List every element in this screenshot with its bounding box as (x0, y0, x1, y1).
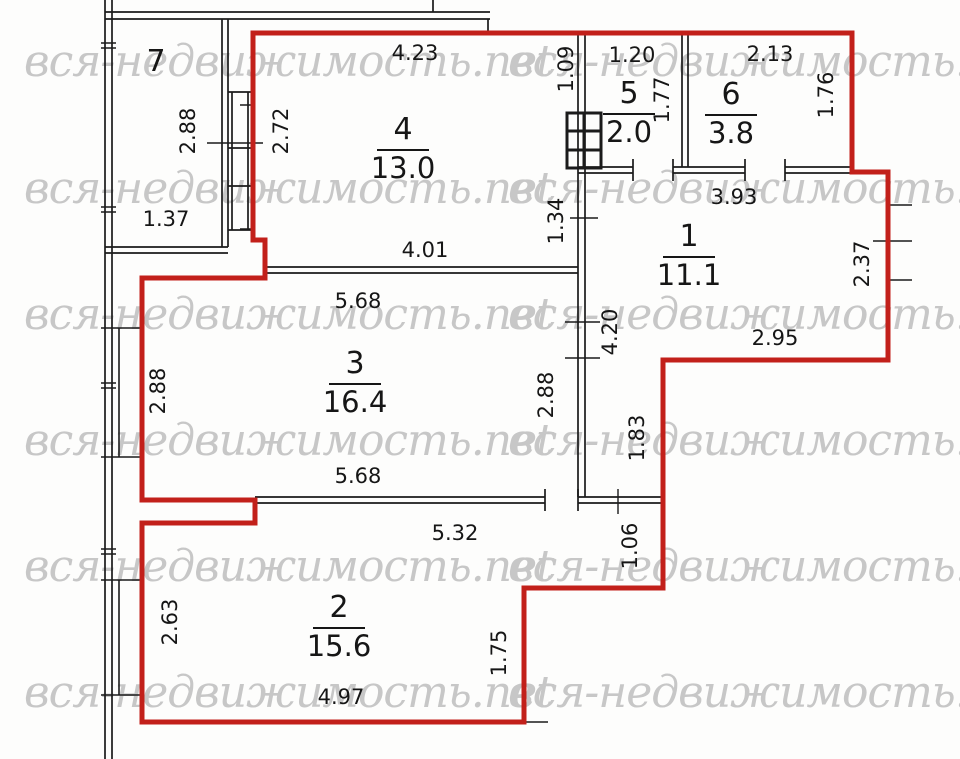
dim-label: 5.68 (335, 289, 382, 313)
dim-label: 4.01 (402, 238, 449, 262)
dim-label: 1.34 (544, 198, 568, 245)
dim-label: 4.20 (598, 309, 622, 356)
dim-label: 1.20 (609, 43, 656, 67)
dim-label: 1.77 (650, 77, 674, 124)
floor-plan-page: вся-недвижимость.net вся-недвижимость.ne… (0, 0, 960, 759)
dim-label: 1.06 (618, 523, 642, 570)
glazing-ticks (101, 43, 116, 554)
balcony-door-window (228, 92, 253, 230)
dim-label: 2.95 (752, 326, 799, 350)
room-label-6: 6 3.8 (676, 79, 786, 148)
room-number: 4 (348, 114, 458, 146)
room-number: 2 (284, 592, 394, 624)
dim-label: 1.37 (143, 207, 190, 231)
dim-label: 2.88 (176, 108, 200, 155)
dim-label: 1.83 (625, 415, 649, 462)
dim-label: 1.09 (554, 46, 578, 93)
dim-label: 2.88 (146, 368, 170, 415)
dim-label: 3.93 (711, 185, 758, 209)
dim-label: 4.23 (392, 41, 439, 65)
room-area: 3.8 (676, 118, 786, 148)
room-number: 6 (676, 79, 786, 111)
room-area: 15.6 (284, 631, 394, 661)
dim-label: 5.68 (335, 464, 382, 488)
room-number: 7 (101, 46, 211, 78)
room-number: 1 (634, 221, 744, 253)
room-label-1: 1 11.1 (634, 221, 744, 290)
room-number: 3 (300, 348, 410, 380)
dim-label: 2.63 (158, 599, 182, 646)
room-area: 13.0 (348, 153, 458, 183)
dim-label: 2.72 (269, 108, 293, 155)
room-label-7: 7 (101, 46, 211, 78)
dim-label: 4.97 (318, 685, 365, 709)
dim-label: 2.37 (850, 241, 874, 288)
dim-label: 1.75 (487, 630, 511, 677)
dim-label: 2.88 (534, 372, 558, 419)
room-label-3: 3 16.4 (300, 348, 410, 417)
dim-label: 1.76 (814, 72, 838, 119)
room-area: 11.1 (634, 260, 744, 290)
dim-label: 5.32 (432, 521, 479, 545)
room-label-4: 4 13.0 (348, 114, 458, 183)
dim-label: 2.13 (747, 42, 794, 66)
room-area: 16.4 (300, 387, 410, 417)
room-label-2: 2 15.6 (284, 592, 394, 661)
